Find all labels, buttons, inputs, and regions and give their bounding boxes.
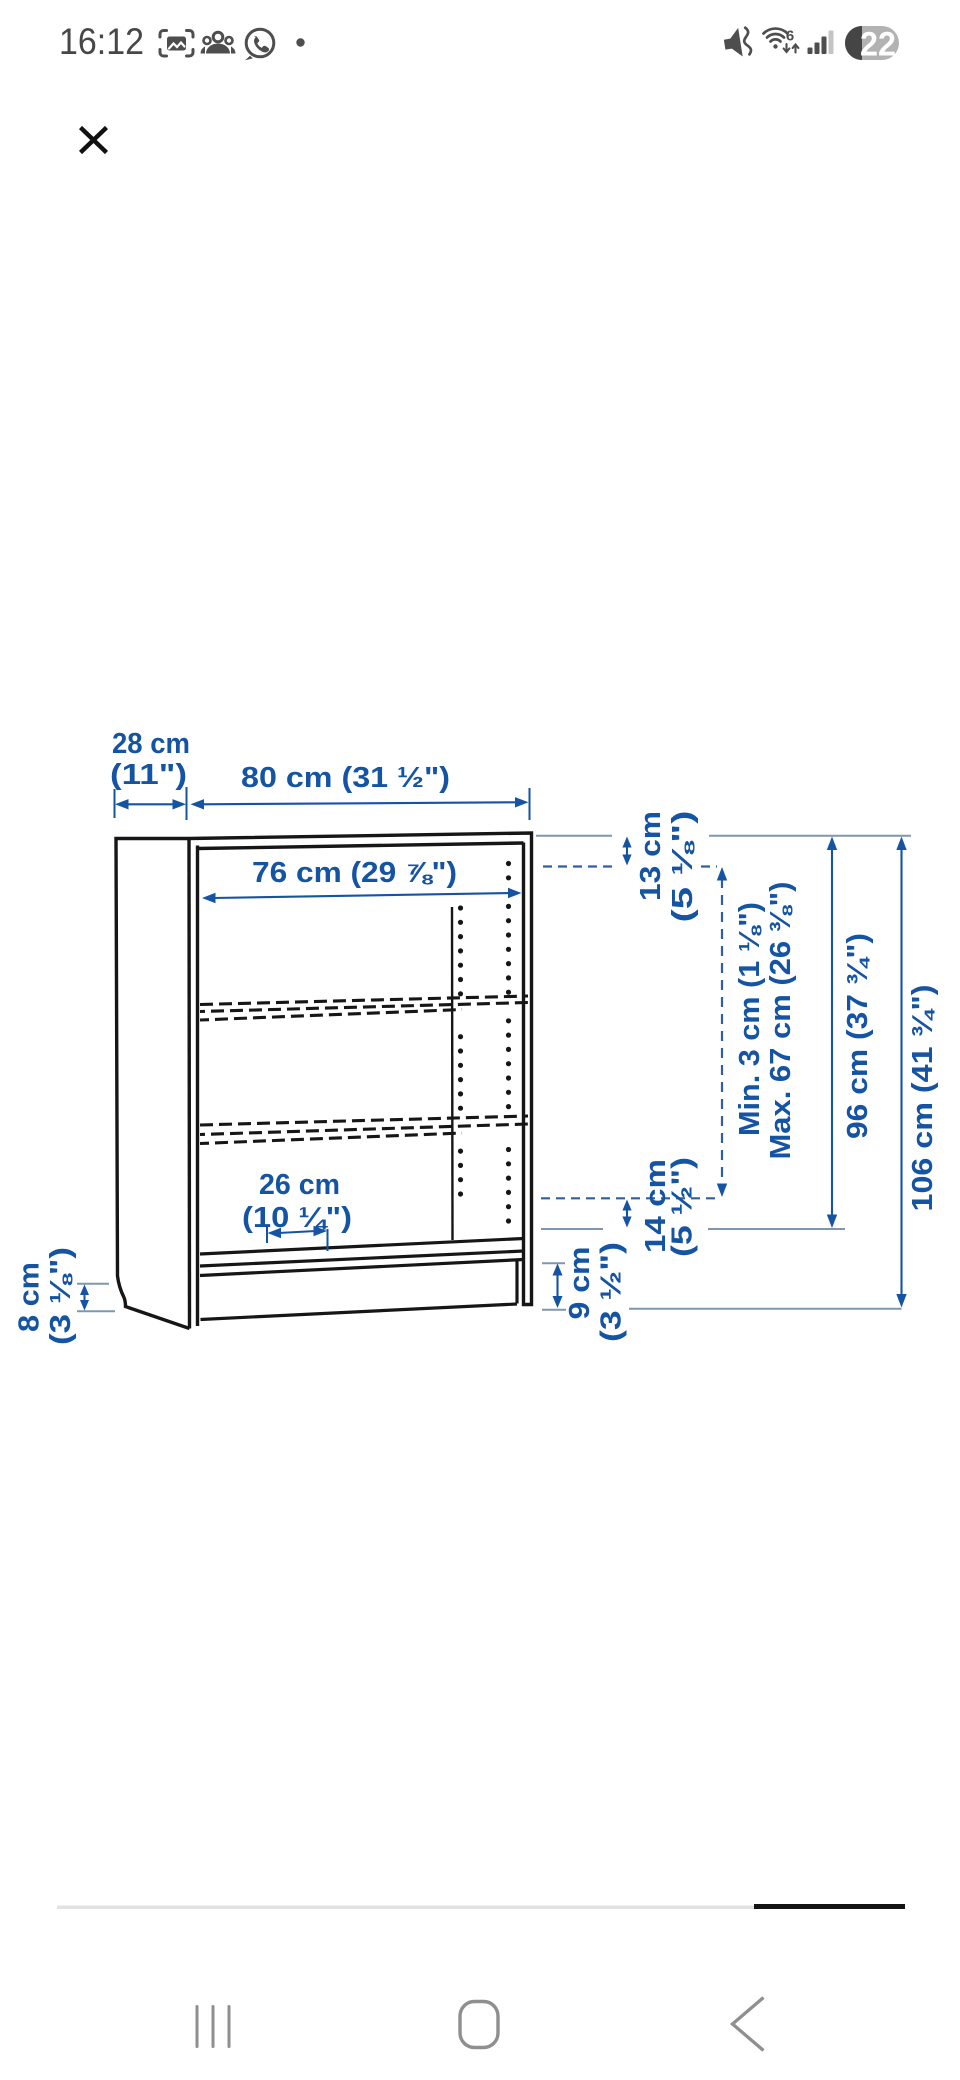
svg-text:(5 ⅛"): (5 ⅛") <box>667 811 699 923</box>
svg-text:(5 ½"): (5 ½") <box>667 1157 699 1257</box>
svg-text:76 cm (29 ⅞"): 76 cm (29 ⅞") <box>252 857 457 889</box>
svg-text:16:12: 16:12 <box>59 21 144 62</box>
svg-text:106 cm (41 ¾"): 106 cm (41 ¾") <box>907 985 939 1212</box>
svg-text:80 cm (31 ½"): 80 cm (31 ½") <box>241 762 450 794</box>
svg-text:8 cm: 8 cm <box>14 1262 46 1332</box>
svg-text:22: 22 <box>860 26 896 64</box>
svg-text:9 cm: 9 cm <box>564 1247 596 1320</box>
svg-text:(3 ½"): (3 ½") <box>596 1242 628 1342</box>
svg-text:6: 6 <box>786 28 794 45</box>
svg-text:28 cm: 28 cm <box>112 728 190 760</box>
svg-text:(3 ⅛"): (3 ⅛") <box>45 1247 77 1345</box>
svg-text:96 cm (37 ¾"): 96 cm (37 ¾") <box>842 933 874 1139</box>
svg-text:(11"): (11") <box>110 759 187 791</box>
svg-text:Max. 67 cm (26 ⅜"): Max. 67 cm (26 ⅜") <box>765 882 797 1160</box>
svg-text:26 cm: 26 cm <box>259 1169 340 1201</box>
svg-text:Min. 3 cm (1 ⅛"): Min. 3 cm (1 ⅛") <box>734 902 766 1136</box>
svg-text:(10 ¼"): (10 ¼") <box>242 1202 352 1234</box>
svg-text:13 cm: 13 cm <box>635 811 667 901</box>
